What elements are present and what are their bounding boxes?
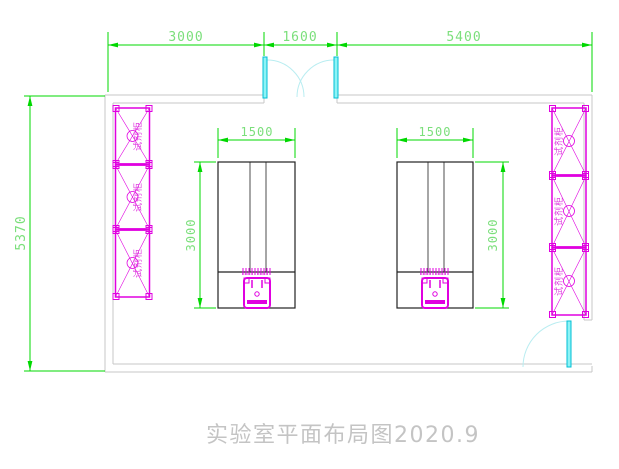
floorplan-canvas[interactable]: 3000 1600 5400 5370 1500 3000	[0, 0, 619, 469]
cabinet-label: 试剂柜	[132, 182, 144, 212]
reagent-cabinet: 试剂柜	[113, 106, 152, 167]
cabinet-separator	[120, 228, 145, 231]
cabinet-separator	[557, 246, 582, 249]
cabinet-label: 试剂柜	[553, 126, 565, 156]
reagent-cabinet: 试剂柜	[550, 174, 589, 250]
door-leaf	[567, 321, 571, 367]
cabinet-column-left: 试剂柜 试剂柜 试剂柜	[113, 106, 152, 300]
dimension-left: 5370	[14, 96, 105, 371]
dim-label-top-right: 5400	[446, 30, 481, 45]
sink-symbol	[420, 268, 450, 308]
cabinet-label: 试剂柜	[553, 266, 565, 296]
door-leaf	[334, 57, 338, 98]
floorplan-page: 3000 1600 5400 5370 1500 3000	[0, 0, 619, 469]
bench-shelf-hatch	[250, 162, 266, 272]
cabinet-label: 试剂柜	[132, 121, 144, 151]
door-leaf	[263, 57, 267, 98]
cabinet-separator	[557, 174, 582, 177]
wall-outer	[105, 95, 592, 372]
bench-outline	[218, 162, 295, 308]
reagent-cabinet: 试剂柜	[550, 106, 589, 178]
door-swing-arc	[267, 60, 304, 97]
dim-label-top-middle: 1600	[282, 30, 317, 45]
reagent-cabinet: 试剂柜	[113, 163, 152, 232]
bench-outline	[397, 162, 473, 308]
dimension-top: 3000 1600 5400	[108, 30, 592, 92]
cabinet-column-right: 试剂柜 试剂柜 试剂柜	[550, 106, 589, 318]
sink-symbol	[242, 268, 272, 308]
dimension-bench-right-height: 3000	[475, 162, 509, 308]
door-swing-arc	[523, 321, 569, 367]
dim-label-bench-width: 1500	[419, 125, 452, 139]
dimension-bench-right-width: 1500	[397, 125, 473, 158]
bench-right: 1500 3000	[397, 125, 509, 308]
dimension-bench-left-height: 3000	[184, 162, 216, 308]
dim-label-bench-height: 3000	[184, 219, 198, 252]
reagent-cabinet: 试剂柜	[550, 246, 589, 318]
room-walls	[105, 95, 592, 372]
door-swing-arc	[297, 60, 334, 97]
dim-label-bench-height: 3000	[486, 219, 500, 252]
dim-label-left: 5370	[14, 215, 29, 250]
cabinet-label: 试剂柜	[132, 248, 144, 278]
dim-label-bench-width: 1500	[241, 125, 274, 139]
dim-label-top-left: 3000	[168, 30, 203, 45]
reagent-cabinet: 试剂柜	[113, 228, 152, 300]
cabinet-separator	[120, 163, 145, 166]
double-door-top	[263, 57, 338, 98]
drawing-title: 实验室平面布局图2020.9	[206, 423, 480, 448]
dimension-bench-left-width: 1500	[218, 125, 295, 158]
single-door-right	[523, 321, 571, 367]
bench-shelf-hatch	[428, 162, 444, 272]
cabinet-label: 试剂柜	[553, 196, 565, 226]
bench-left: 1500 3000	[184, 125, 295, 308]
